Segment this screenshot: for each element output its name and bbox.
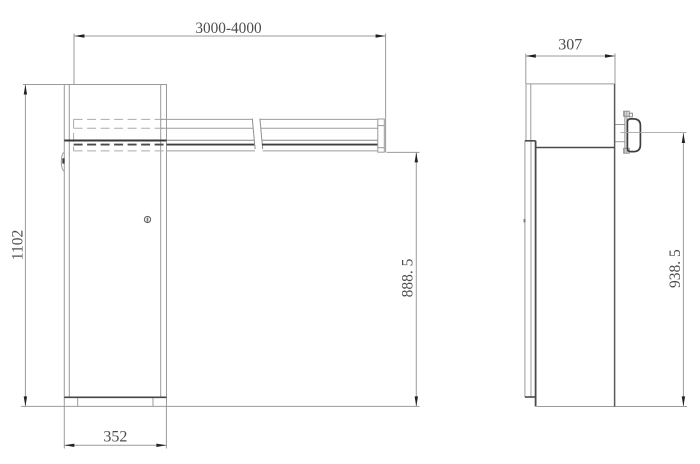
svg-text:307: 307 xyxy=(558,37,582,54)
svg-text:888. 5: 888. 5 xyxy=(400,258,417,297)
svg-text:938. 5: 938. 5 xyxy=(667,249,684,288)
svg-text:1102: 1102 xyxy=(10,230,27,260)
svg-text:3000-4000: 3000-4000 xyxy=(195,20,262,37)
svg-text:352: 352 xyxy=(103,428,127,445)
